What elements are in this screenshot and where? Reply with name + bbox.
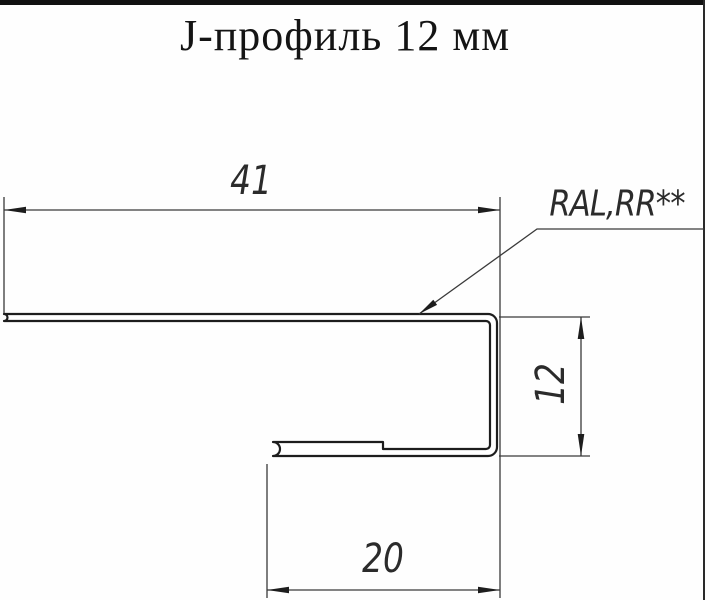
dimension-41 xyxy=(4,197,500,598)
dim-label-top-width: 41 xyxy=(230,158,272,204)
arrow-right-icon xyxy=(478,207,500,214)
dim-label-bottom-width: 20 xyxy=(362,536,404,582)
drawing-sheet: J-профиль 12 мм xyxy=(0,0,707,600)
leader-arrow-icon xyxy=(419,300,437,314)
coating-leader xyxy=(419,229,704,314)
j-profile-drawing xyxy=(0,0,707,600)
arrow-left-icon xyxy=(267,587,289,594)
arrow-down-icon xyxy=(578,434,585,456)
arrow-left-icon xyxy=(4,207,26,214)
j-profile-outline xyxy=(4,314,497,456)
dim-label-right-height: 12 xyxy=(528,363,574,405)
arrow-up-icon xyxy=(578,317,585,339)
coating-label: RAL,RR** xyxy=(549,184,684,225)
arrow-right-icon xyxy=(478,587,500,594)
